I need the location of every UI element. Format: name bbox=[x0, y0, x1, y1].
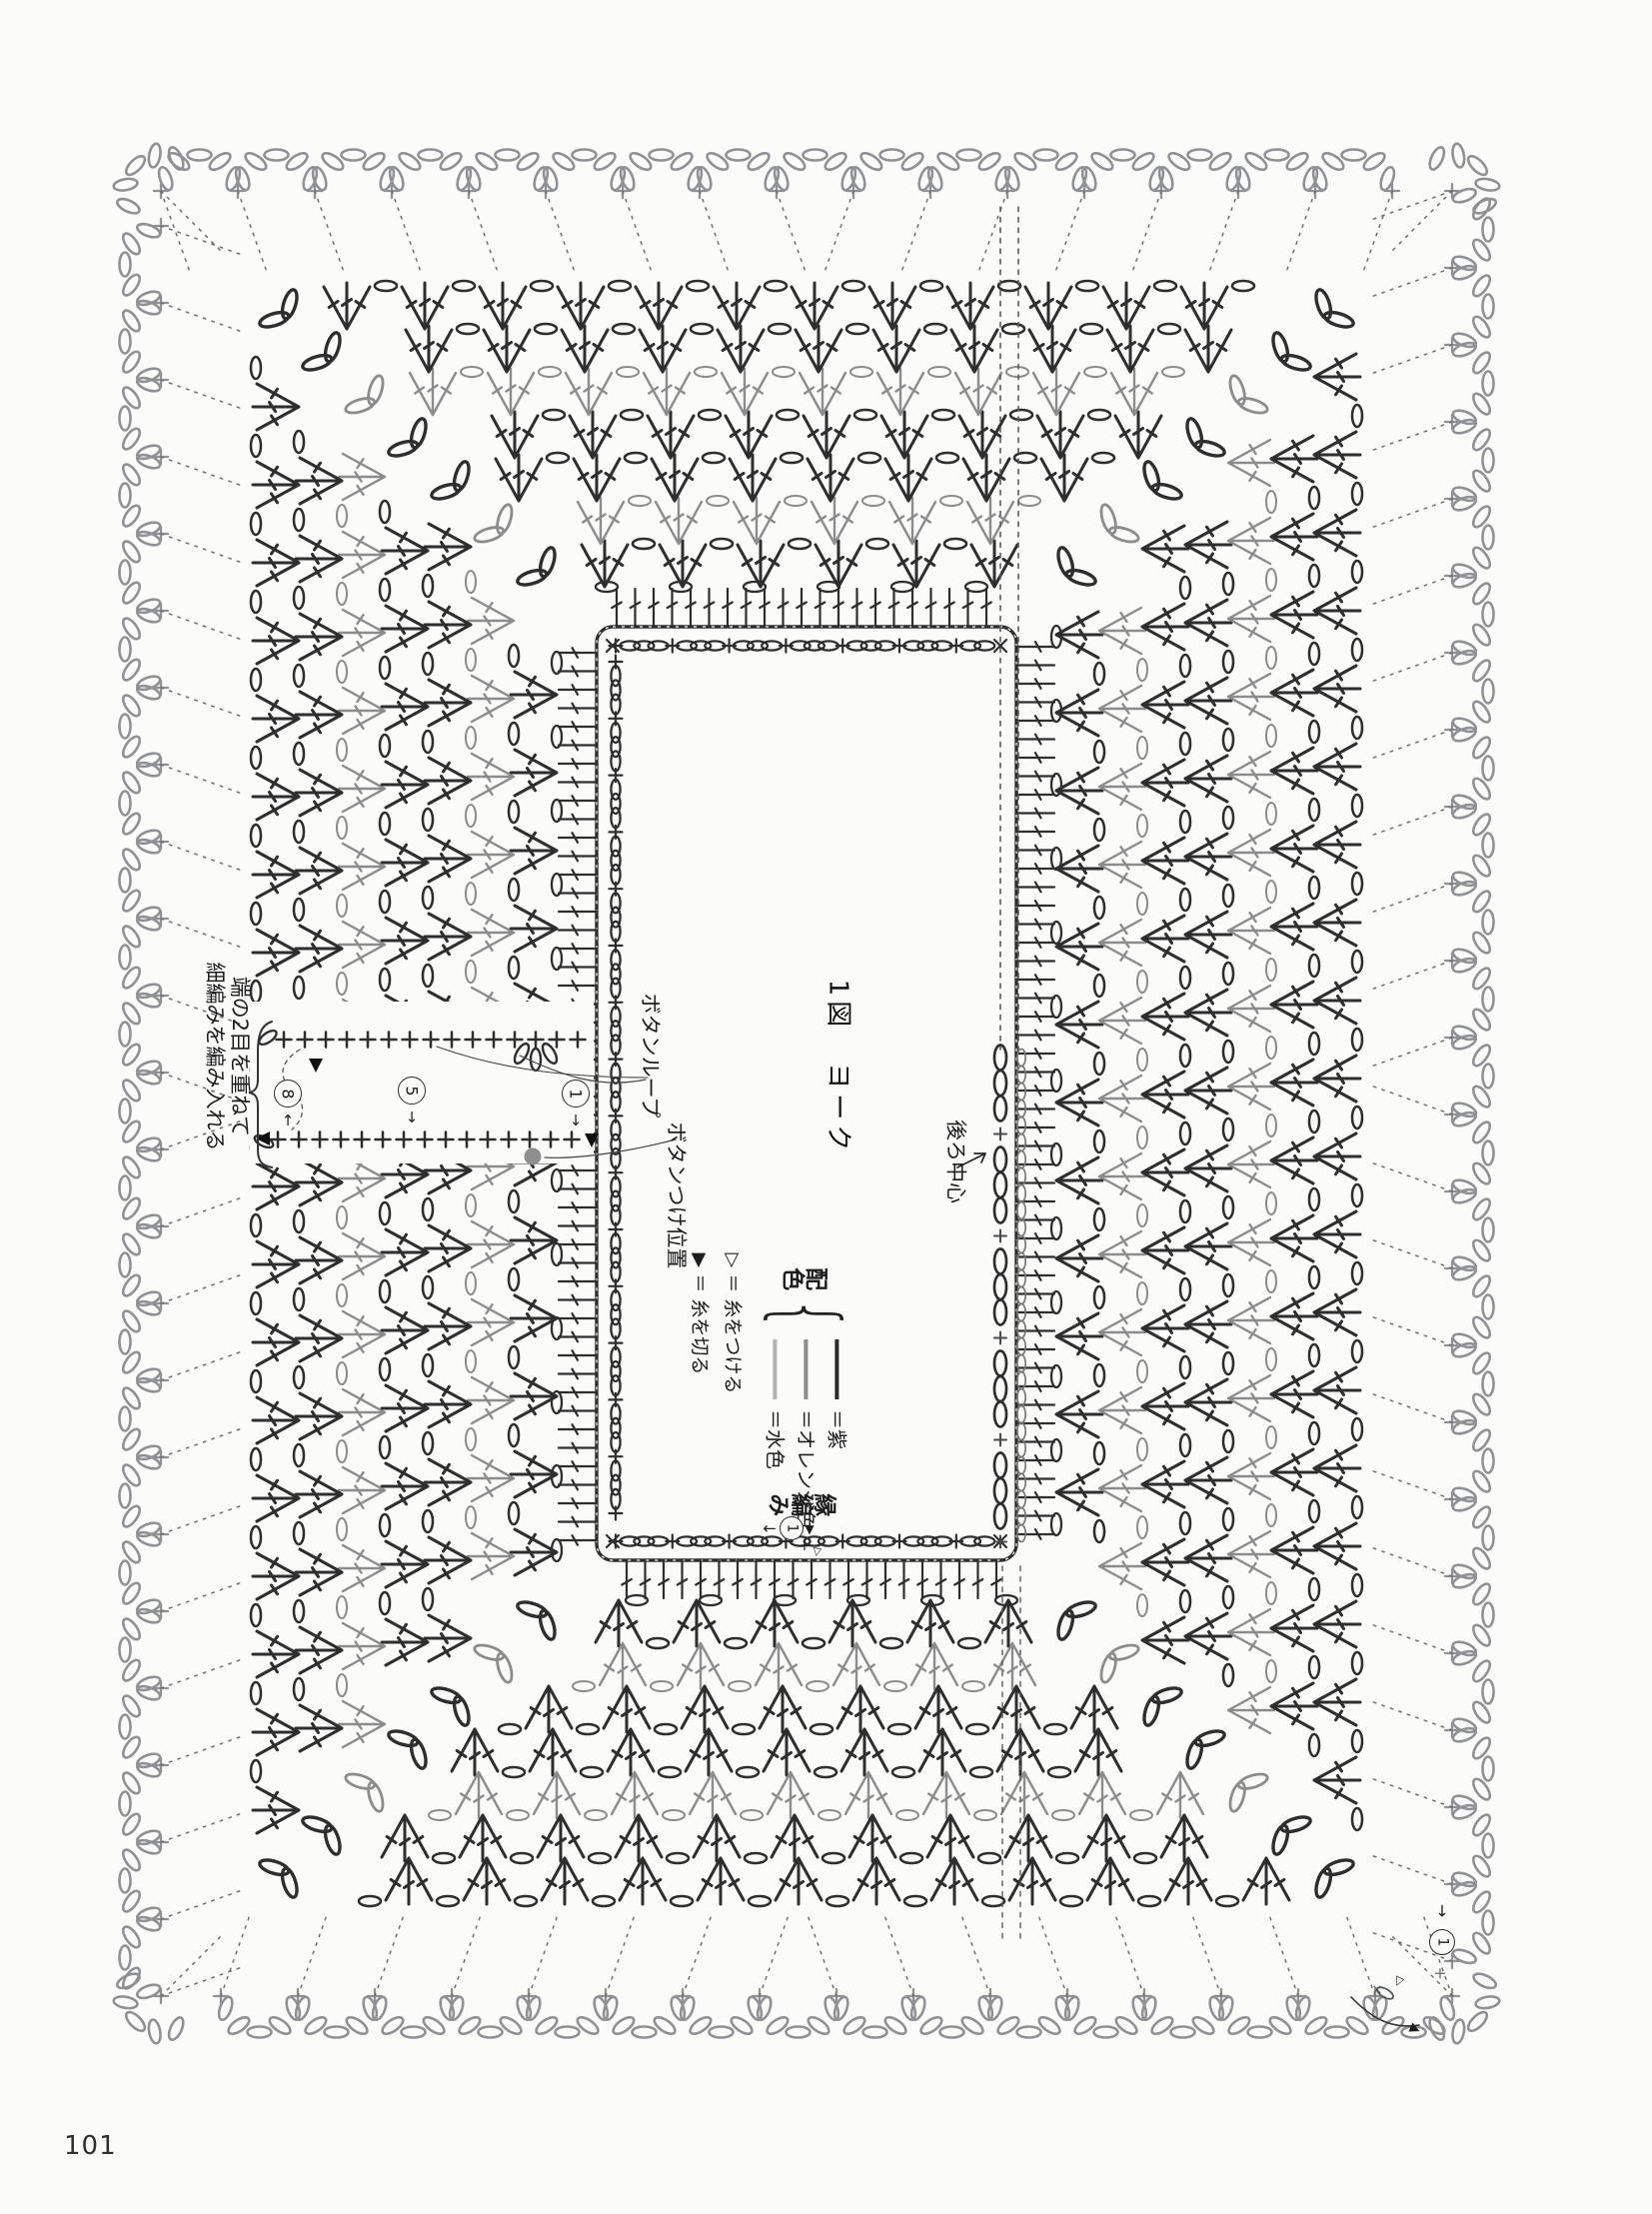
open-triangle-icon: ▷ bbox=[722, 1253, 744, 1268]
orange-line-sample bbox=[804, 1339, 808, 1399]
button-position-label: ボタンつけ位置 bbox=[663, 1122, 688, 1269]
up-arrow-icon: ↑ bbox=[282, 1111, 295, 1129]
figure-title: 1図 ヨーク bbox=[822, 980, 852, 1156]
row-number-8: 8 bbox=[274, 1080, 302, 1107]
left-arrow-icon: ← bbox=[763, 1519, 776, 1538]
row-number-5: 5 bbox=[398, 1077, 426, 1105]
plus-stitch-icon: + bbox=[799, 1538, 811, 1554]
edging-round-number-1: 1 bbox=[780, 1516, 804, 1540]
attach-yarn-legend: ▷ ＝ 糸をつける bbox=[721, 1253, 744, 1394]
outer-edging-round-number-1: 1 bbox=[1429, 1929, 1455, 1955]
slip-stitch-cross-icon: × bbox=[1372, 1983, 1383, 1998]
button-loop-label: ボタンループ bbox=[637, 994, 662, 1118]
purple-line-sample bbox=[834, 1339, 838, 1399]
row-number-1: 1 bbox=[562, 1080, 590, 1107]
down-arrow-icon: ↓ bbox=[406, 1108, 419, 1126]
page-number: 101 bbox=[64, 2131, 117, 2161]
legend-item-purple: ＝紫 bbox=[825, 1339, 848, 1529]
yarn-marks-legend: ▷ ＝ 糸をつける ▶ ＝ 糸を切る bbox=[650, 1253, 782, 1394]
back-center-label: 後ろ中心 bbox=[942, 1119, 967, 1203]
plus-stitch-icon: + bbox=[1433, 1964, 1446, 1983]
filled-triangle-icon: ▶ bbox=[689, 1253, 711, 1268]
legend-heading: 配色 bbox=[783, 1261, 828, 1289]
cut-yarn-legend: ▶ ＝ 糸を切る bbox=[688, 1253, 711, 1394]
slit-note-label: 端の2目を重ねて 細編みを編み入れる bbox=[202, 963, 252, 1151]
cut-yarn-triangle-icon: ▼ bbox=[805, 1522, 814, 1536]
book-page: 1図 ヨーク 後ろ中心 ボタンループ ボタンつけ位置 縁編み 端の2目を重ねて … bbox=[0, 0, 1652, 2214]
down-arrow-icon: ↓ bbox=[570, 1111, 583, 1129]
down-arrow-icon: ↓ bbox=[1435, 1902, 1448, 1921]
legend-item-orange: ＝オレンジ色 bbox=[794, 1339, 818, 1529]
